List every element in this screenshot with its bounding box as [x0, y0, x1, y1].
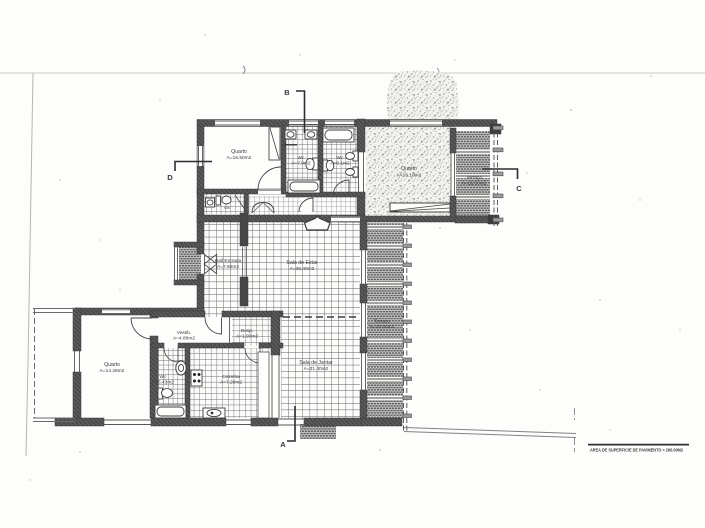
svg-text:A=26.50m2: A=26.50m2 [370, 324, 395, 330]
svg-text:Quarto: Quarto [104, 362, 120, 368]
svg-text:A=4.80m2: A=4.80m2 [173, 336, 195, 342]
svg-text:Wc: Wc [160, 374, 168, 380]
svg-text:A=7.60m2: A=7.60m2 [217, 264, 239, 270]
svg-text:D: D [167, 173, 173, 182]
svg-text:A=7.20m2: A=7.20m2 [220, 380, 242, 386]
svg-text:C: C [516, 184, 522, 193]
svg-text:A=15.50m2: A=15.50m2 [462, 181, 487, 187]
svg-text:A=31.40m2: A=31.40m2 [304, 366, 329, 372]
svg-text:A=6.43m2: A=6.43m2 [152, 380, 174, 386]
svg-text:A: A [280, 440, 286, 449]
svg-text:Sala de Jantar: Sala de Jantar [299, 360, 333, 366]
svg-text:A=6.1m2: A=6.1m2 [330, 161, 350, 167]
svg-text:Wc: Wc [298, 155, 306, 161]
svg-text:Wc: Wc [224, 205, 230, 210]
svg-text:Desp.: Desp. [241, 328, 254, 334]
svg-text:Quarto: Quarto [231, 149, 247, 155]
svg-text:A=1.90m2: A=1.90m2 [236, 334, 258, 340]
svg-text:Terraço: Terraço [466, 175, 482, 181]
svg-text:Terraço: Terraço [374, 319, 390, 325]
svg-text:Sala de Estar: Sala de Estar [286, 260, 317, 266]
svg-text:Vestib.: Vestib. [177, 330, 191, 336]
svg-text:Wc: Wc [337, 155, 345, 161]
svg-text:Cozinha: Cozinha [222, 374, 240, 380]
svg-text:Quarto: Quarto [401, 166, 417, 172]
svg-text:A=16.10m2: A=16.10m2 [397, 173, 422, 179]
svg-text:A=16.50m2: A=16.50m2 [227, 155, 252, 161]
svg-text:A=7.9m2: A=7.9m2 [291, 161, 311, 167]
svg-text:A=14.28m2: A=14.28m2 [100, 368, 125, 374]
svg-text:Hall Entrada: Hall Entrada [215, 258, 242, 264]
svg-text:A=36.40m2: A=36.40m2 [290, 266, 315, 272]
svg-text:AREA DE SUPERFICIE DE PAVIMENT: AREA DE SUPERFICIE DE PAVIMENTO = 260.00… [590, 448, 683, 453]
svg-text:B: B [284, 88, 290, 97]
